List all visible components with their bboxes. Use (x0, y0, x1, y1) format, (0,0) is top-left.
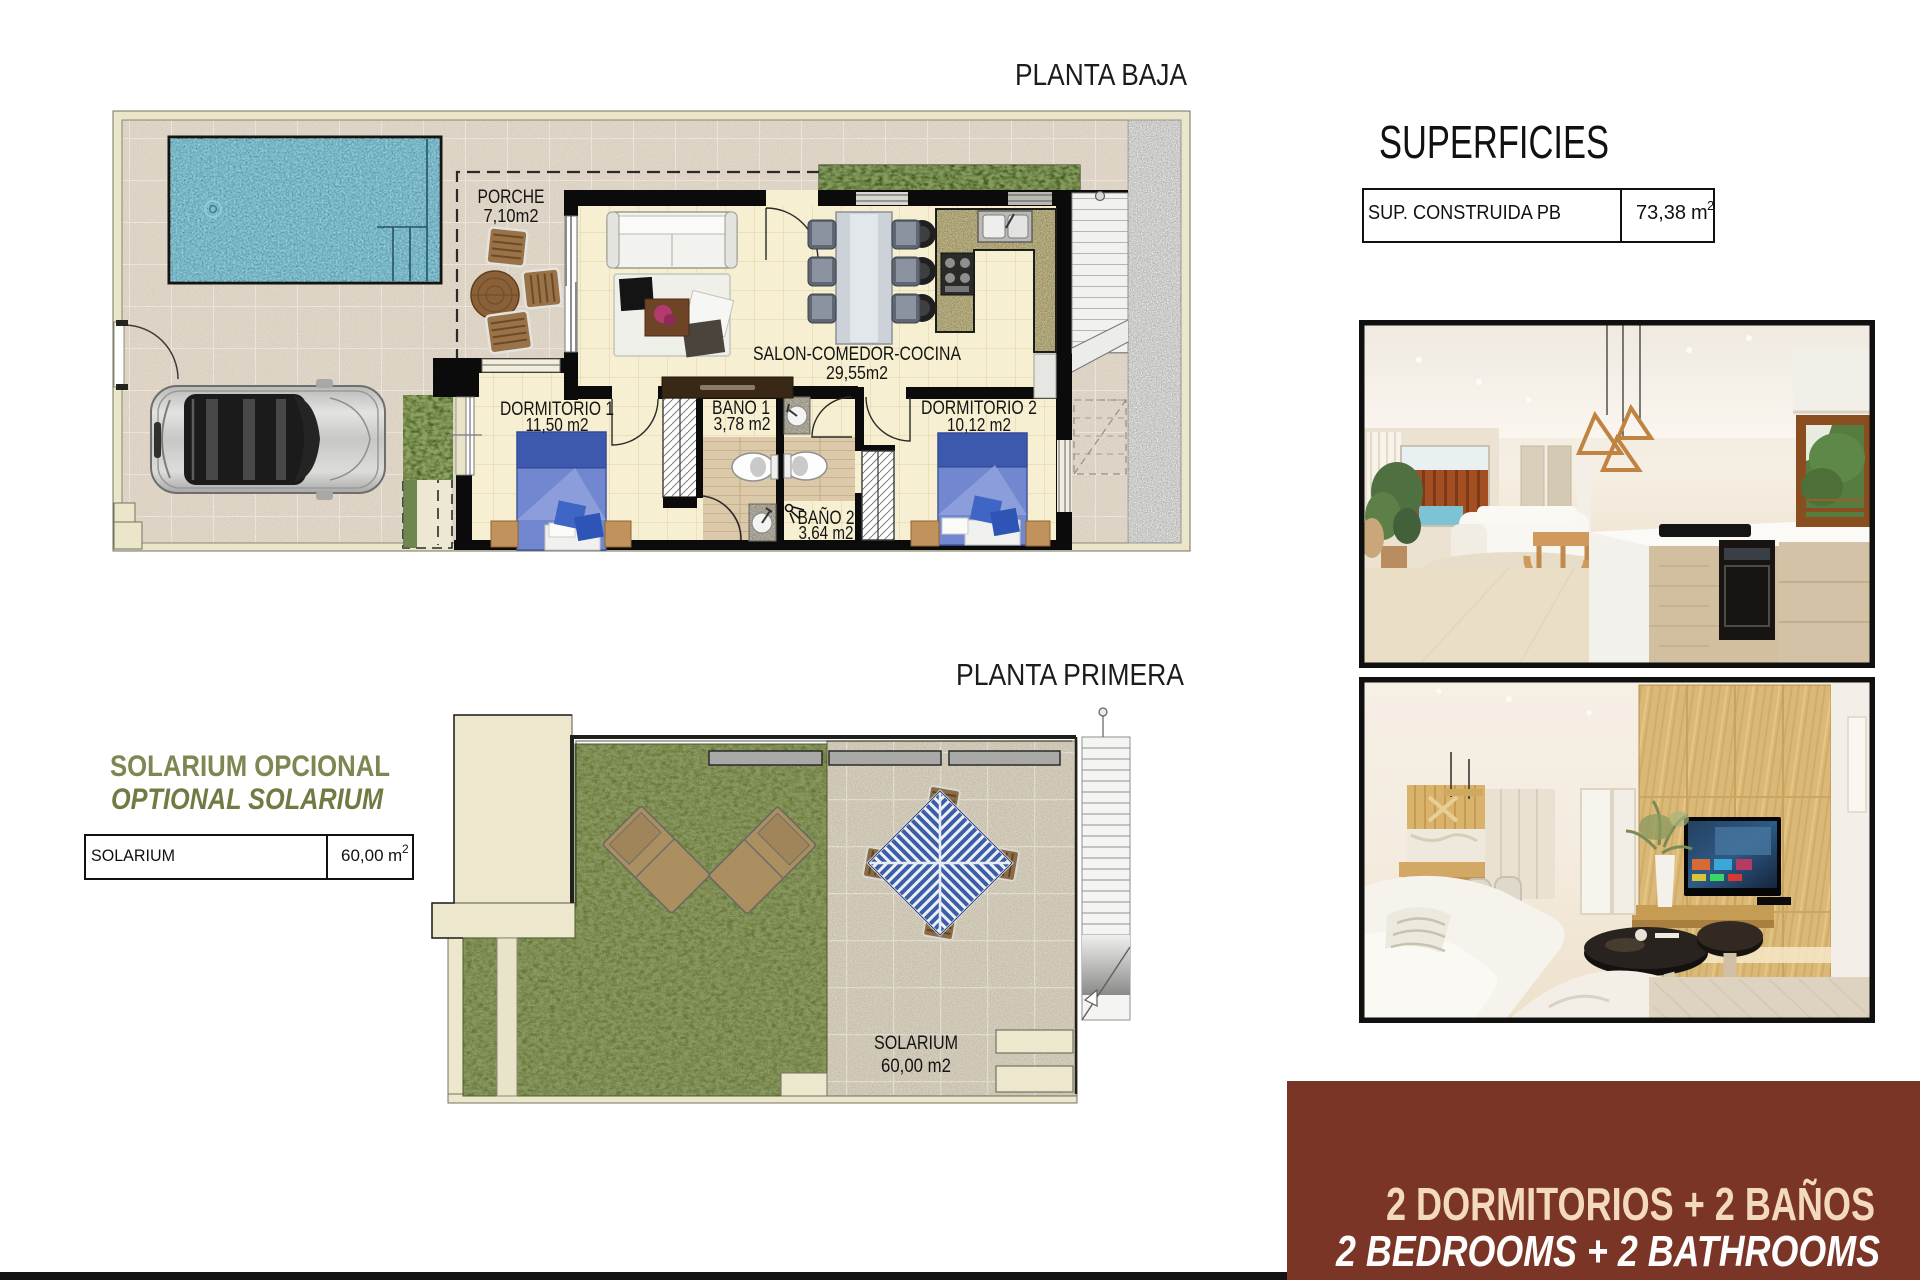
svg-text:PLANTA BAJA: PLANTA BAJA (1015, 57, 1187, 92)
svg-text:11,50 m2: 11,50 m2 (526, 415, 589, 435)
svg-text:3,64 m2: 3,64 m2 (799, 523, 854, 543)
svg-text:73,38: 73,38 (1636, 202, 1686, 224)
svg-text:2 DORMITORIOS + 2 BAÑOS: 2 DORMITORIOS + 2 BAÑOS (1386, 1178, 1875, 1230)
svg-text:SOLARIUM OPCIONAL: SOLARIUM OPCIONAL (110, 750, 390, 783)
svg-text:60,00: 60,00 (341, 846, 384, 865)
svg-text:3,78 m2: 3,78 m2 (714, 414, 771, 434)
svg-text:PLANTA PRIMERA: PLANTA PRIMERA (956, 657, 1184, 692)
svg-text:m: m (388, 846, 402, 865)
svg-text:SOLARIUM: SOLARIUM (91, 846, 175, 865)
svg-text:2 BEDROOMS + 2 BATHROOMS: 2 BEDROOMS + 2 BATHROOMS (1335, 1227, 1880, 1276)
svg-text:SALON-COMEDOR-COCINA: SALON-COMEDOR-COCINA (753, 344, 961, 365)
svg-text:PORCHE: PORCHE (478, 187, 545, 208)
svg-text:SUPERFICIES: SUPERFICIES (1379, 116, 1609, 166)
svg-text:60,00 m2: 60,00 m2 (881, 1056, 951, 1077)
svg-text:7,10m2: 7,10m2 (484, 206, 539, 226)
svg-text:2: 2 (1707, 198, 1714, 213)
svg-text:SOLARIUM: SOLARIUM (874, 1033, 958, 1054)
svg-text:SUP. CONSTRUIDA PB: SUP. CONSTRUIDA PB (1368, 202, 1561, 224)
svg-text:OPTIONAL SOLARIUM: OPTIONAL SOLARIUM (111, 783, 384, 816)
svg-text:10,12 m2: 10,12 m2 (947, 415, 1011, 435)
svg-text:29,55m2: 29,55m2 (826, 363, 888, 383)
svg-text:m: m (1691, 202, 1708, 224)
svg-text:2: 2 (402, 842, 409, 856)
